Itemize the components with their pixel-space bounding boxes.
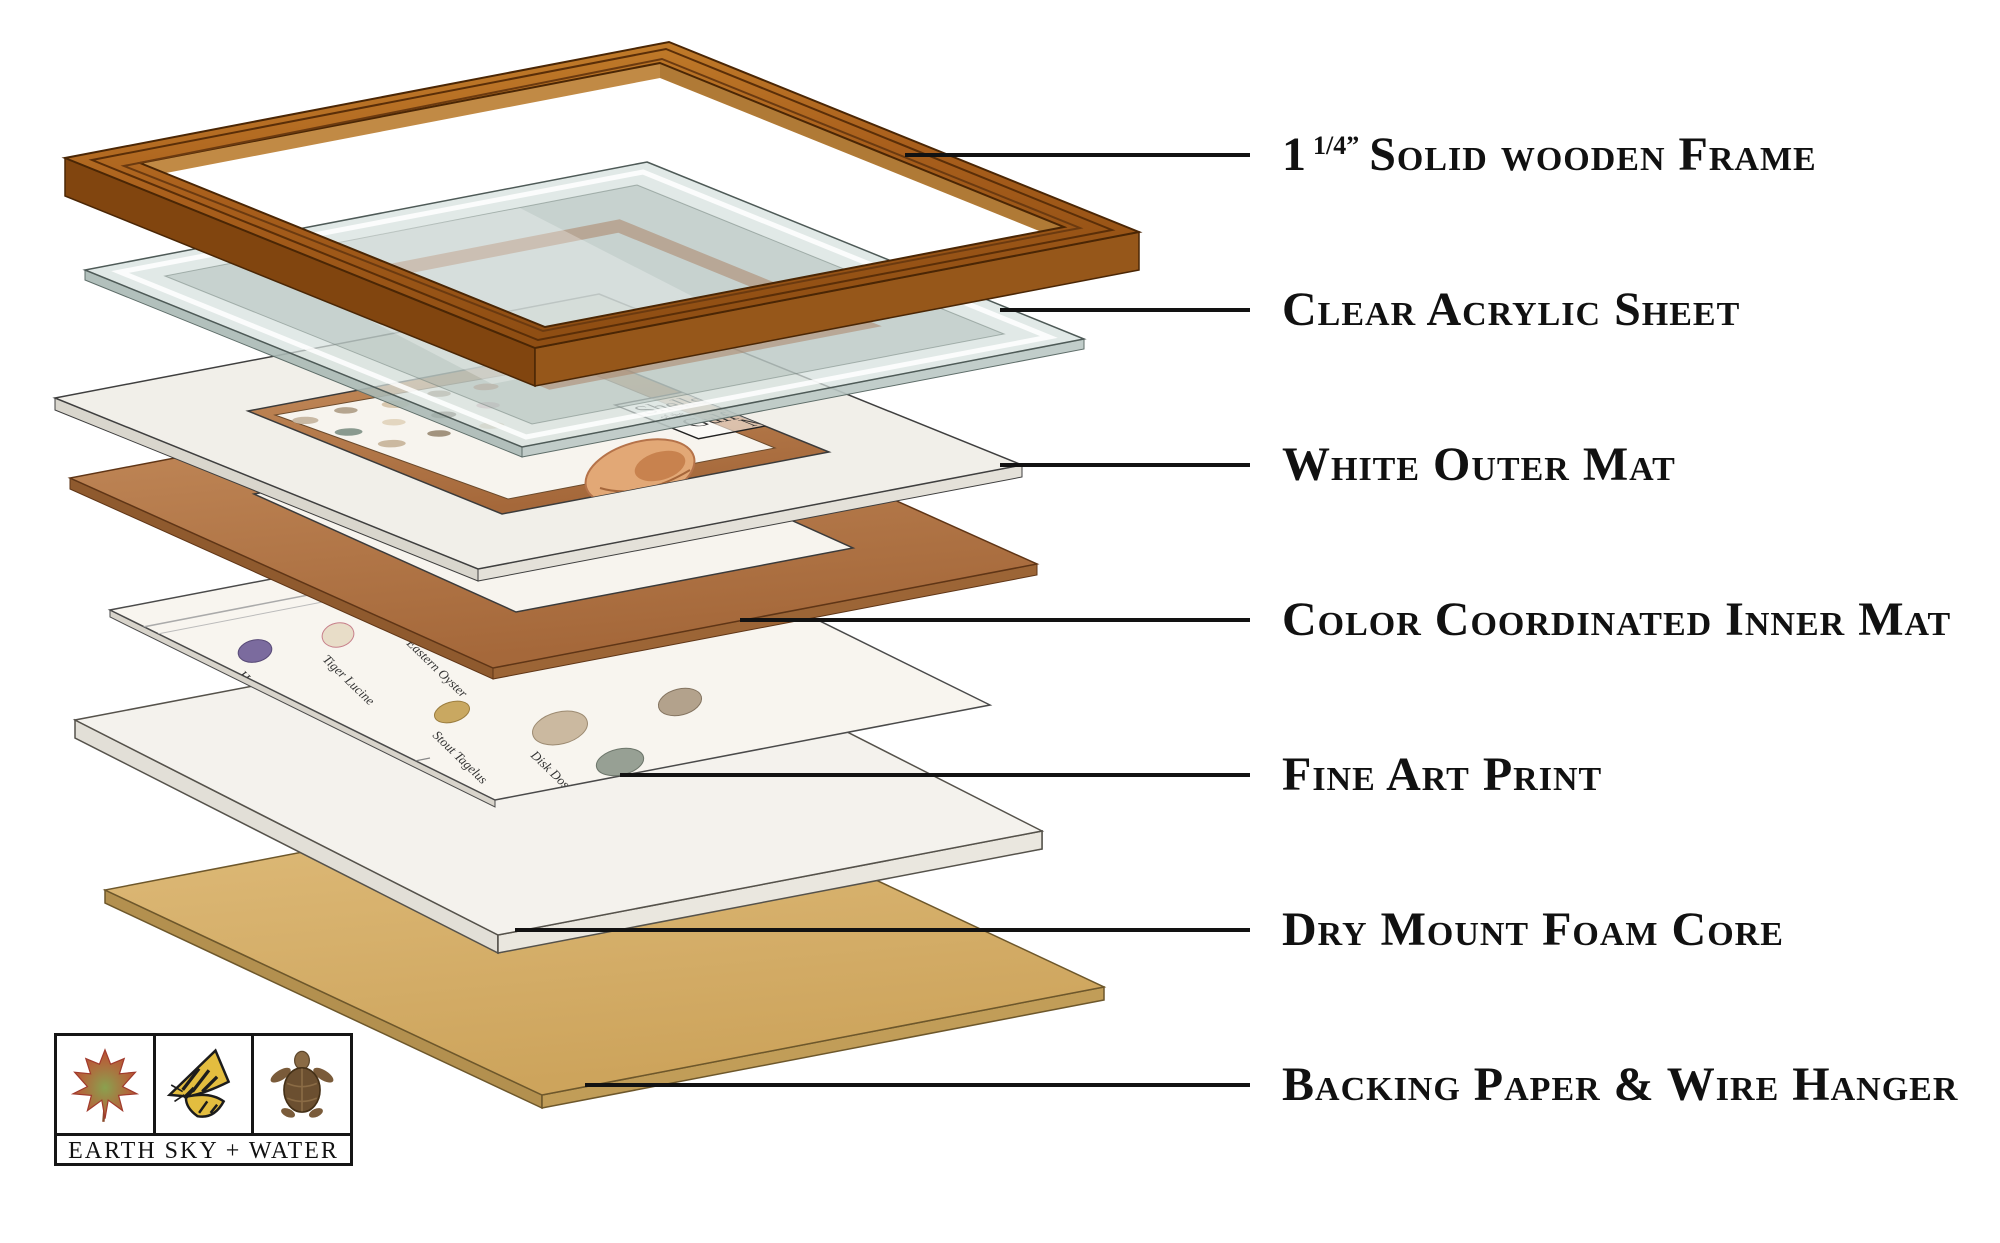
label-size-number: 1 <box>1282 128 1307 181</box>
brand-cell-sky <box>156 1036 255 1133</box>
label-text: Dry Mount Foam Core <box>1282 903 1784 956</box>
label-acrylic-sheet: Clear Acrylic Sheet <box>1282 281 1740 339</box>
label-text: Backing Paper & Wire Hanger <box>1282 1058 1958 1111</box>
sea-turtle-icon <box>261 1043 343 1127</box>
label-fine-art-print: Fine Art Print <box>1282 746 1602 804</box>
label-text: Color Coordinated Inner Mat <box>1282 593 1951 646</box>
label-text: Solid wooden Frame <box>1369 128 1816 181</box>
label-text: Fine Art Print <box>1282 748 1602 801</box>
brand-name: EARTH SKY + WATER <box>57 1133 350 1166</box>
label-foam-core: Dry Mount Foam Core <box>1282 901 1784 959</box>
frame-window-lip-left <box>140 63 660 178</box>
label-text: Clear Acrylic Sheet <box>1282 283 1740 336</box>
brand-cell-earth <box>57 1036 156 1133</box>
diagram-page: Southern Quahog Hooked Mussel Tiger Luci… <box>0 0 2000 1243</box>
butterfly-icon <box>163 1043 245 1127</box>
brand-logo-images <box>57 1036 350 1133</box>
label-size-fraction: 1/4” <box>1313 131 1359 160</box>
label-outer-mat: White Outer Mat <box>1282 436 1676 494</box>
brand-cell-water <box>254 1036 350 1133</box>
label-backing-paper: Backing Paper & Wire Hanger <box>1282 1056 1958 1114</box>
brand-logo: EARTH SKY + WATER <box>54 1033 353 1166</box>
label-text: White Outer Mat <box>1282 438 1676 491</box>
label-wooden-frame: 11/4”Solid wooden Frame <box>1282 126 1817 184</box>
maple-leaf-icon <box>65 1043 145 1127</box>
label-inner-mat: Color Coordinated Inner Mat <box>1282 591 1951 649</box>
